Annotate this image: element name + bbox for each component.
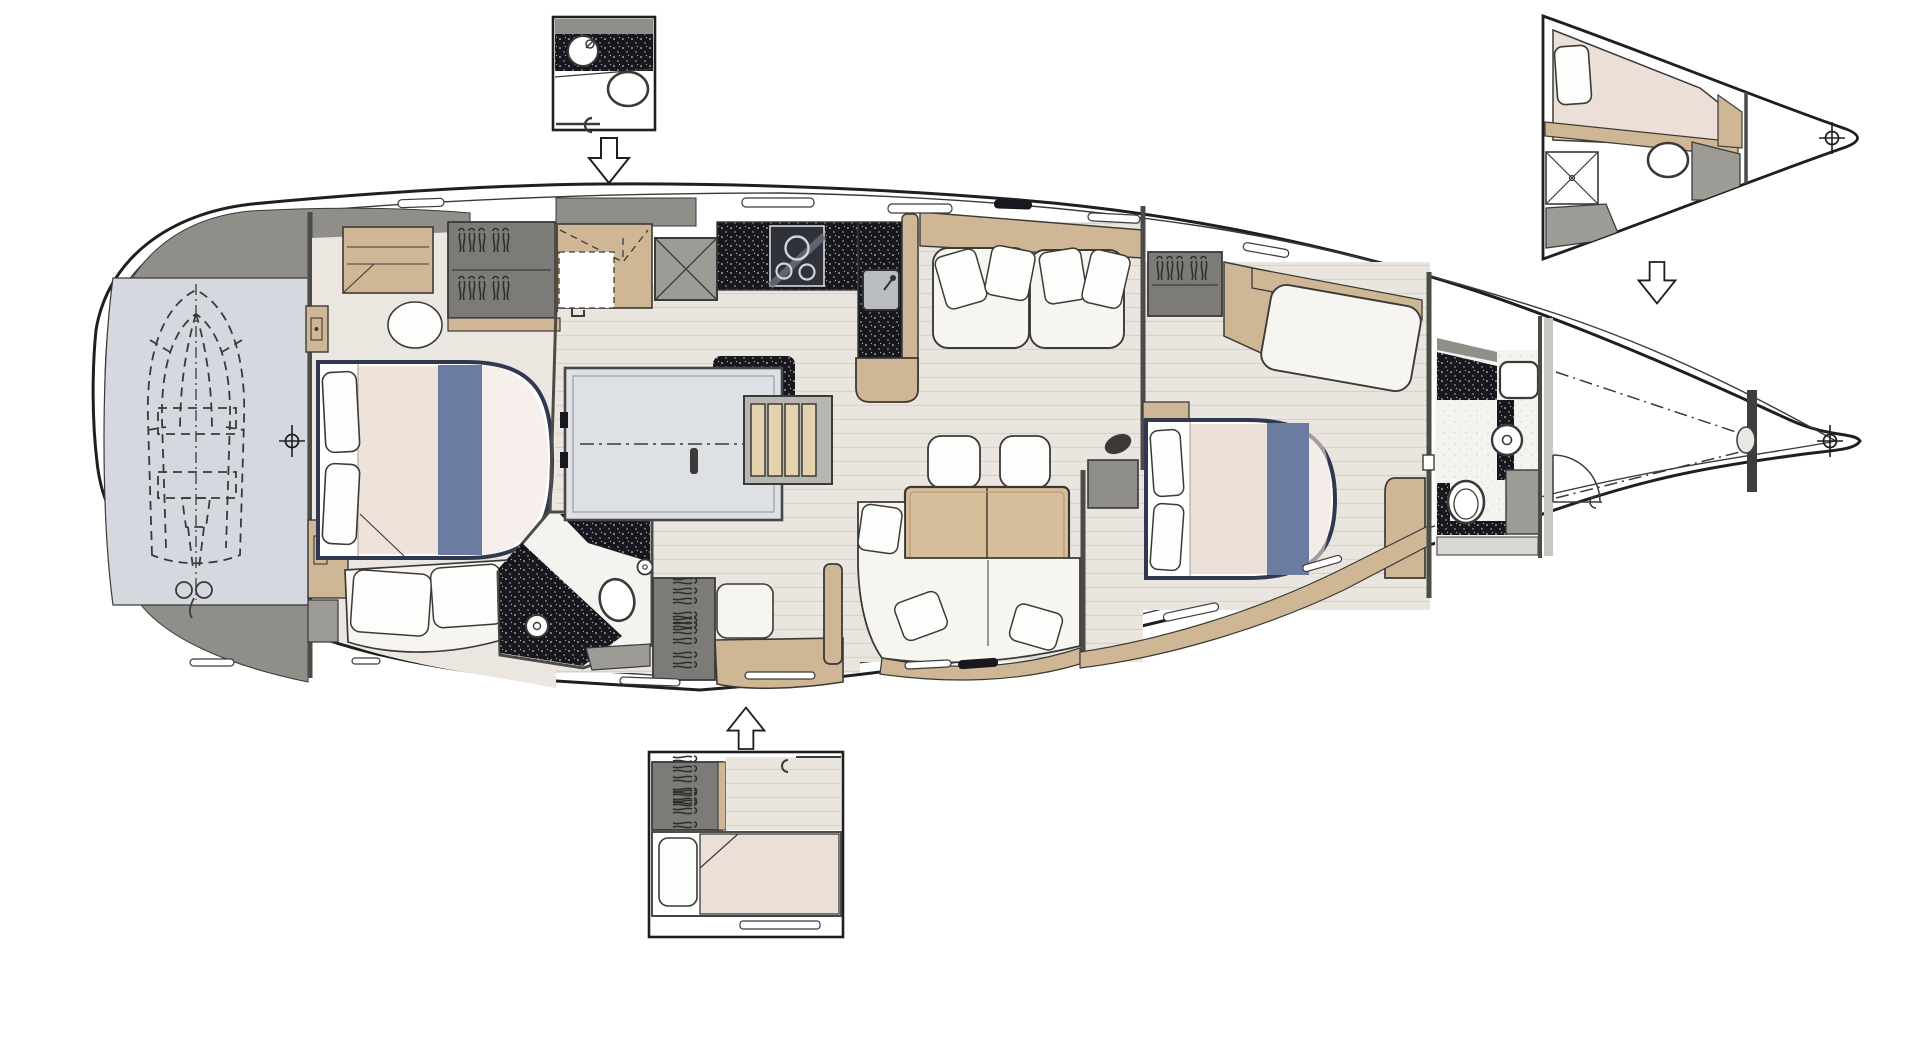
midship-deck-band — [556, 198, 696, 226]
yacht-deck-plan — [0, 0, 1920, 1043]
inset1-wall — [555, 19, 653, 34]
salon-settee-port — [933, 244, 1132, 348]
shower-drain — [526, 615, 548, 637]
forward-head — [1435, 316, 1553, 558]
shower-icon — [1546, 152, 1598, 204]
sink-icon — [863, 270, 899, 310]
pillow — [659, 838, 697, 906]
head-floor-mat — [1437, 537, 1538, 555]
door-cabinet — [1088, 460, 1138, 508]
pillow — [857, 503, 903, 554]
arrow-down-icon — [1639, 262, 1676, 303]
washbasin-icon — [1500, 362, 1538, 398]
collision-bulkhead — [1540, 316, 1553, 558]
crew-locker-aft — [1546, 204, 1620, 248]
deck-cleat — [994, 199, 1032, 209]
mattress — [358, 366, 438, 554]
floor-plan-canvas — [0, 0, 1920, 1043]
aft-wardrobe — [448, 222, 560, 331]
toilet-roll-icon — [1492, 425, 1522, 455]
toilet-icon — [1648, 143, 1688, 177]
inset-bow-crew-cabin-option — [1543, 16, 1858, 303]
inset-aft-cabin-option — [649, 708, 843, 937]
pillow — [322, 371, 360, 453]
inset3-floor — [726, 757, 841, 830]
nightstand — [1143, 402, 1189, 420]
door-latch — [690, 448, 698, 474]
aft-head-mat — [586, 644, 650, 670]
mattress — [700, 834, 839, 914]
inset3-wardrobe — [652, 756, 726, 838]
inset-aft-head-option — [553, 17, 655, 183]
pillow — [1554, 45, 1592, 105]
forward-wardrobe — [1148, 252, 1222, 316]
toilet-roll-icon — [638, 560, 653, 575]
lower-wardrobe — [653, 578, 715, 680]
nav-seat — [717, 584, 773, 638]
inset3-step-slot — [740, 921, 820, 929]
pillow — [1150, 429, 1185, 497]
optional-head-closet — [556, 224, 652, 316]
stool — [928, 436, 980, 488]
toilet-icon — [608, 72, 648, 106]
aft-cabin-bed — [318, 362, 552, 558]
pillow — [1038, 247, 1088, 305]
door-hinge — [1423, 455, 1434, 470]
arrow-up-icon — [728, 708, 765, 749]
stool — [1000, 436, 1050, 488]
pillow — [322, 463, 360, 545]
dresser — [343, 227, 433, 293]
mattress — [1190, 424, 1270, 574]
bed-runner — [438, 365, 482, 555]
aft-cabin-sofa — [345, 560, 508, 652]
sofa-cushion — [430, 564, 504, 629]
toilet-icon — [1448, 481, 1484, 523]
sofa-cushion — [350, 569, 432, 636]
divider-panel — [824, 564, 842, 664]
forward-cabin-bed — [1146, 420, 1335, 578]
bed-runner — [1267, 423, 1309, 575]
inset3-berth — [652, 832, 841, 916]
galley-end-trim — [856, 358, 918, 402]
tender-garage — [104, 278, 308, 605]
pillow — [1150, 503, 1185, 571]
shower-locker — [1506, 470, 1540, 534]
side-locker-top — [306, 306, 328, 352]
deck-hatch — [655, 238, 717, 300]
stove-icon — [770, 226, 824, 286]
stool — [388, 302, 442, 348]
arrow-down-icon — [589, 138, 629, 183]
companionway-steps — [744, 396, 832, 484]
pillow — [984, 244, 1037, 301]
